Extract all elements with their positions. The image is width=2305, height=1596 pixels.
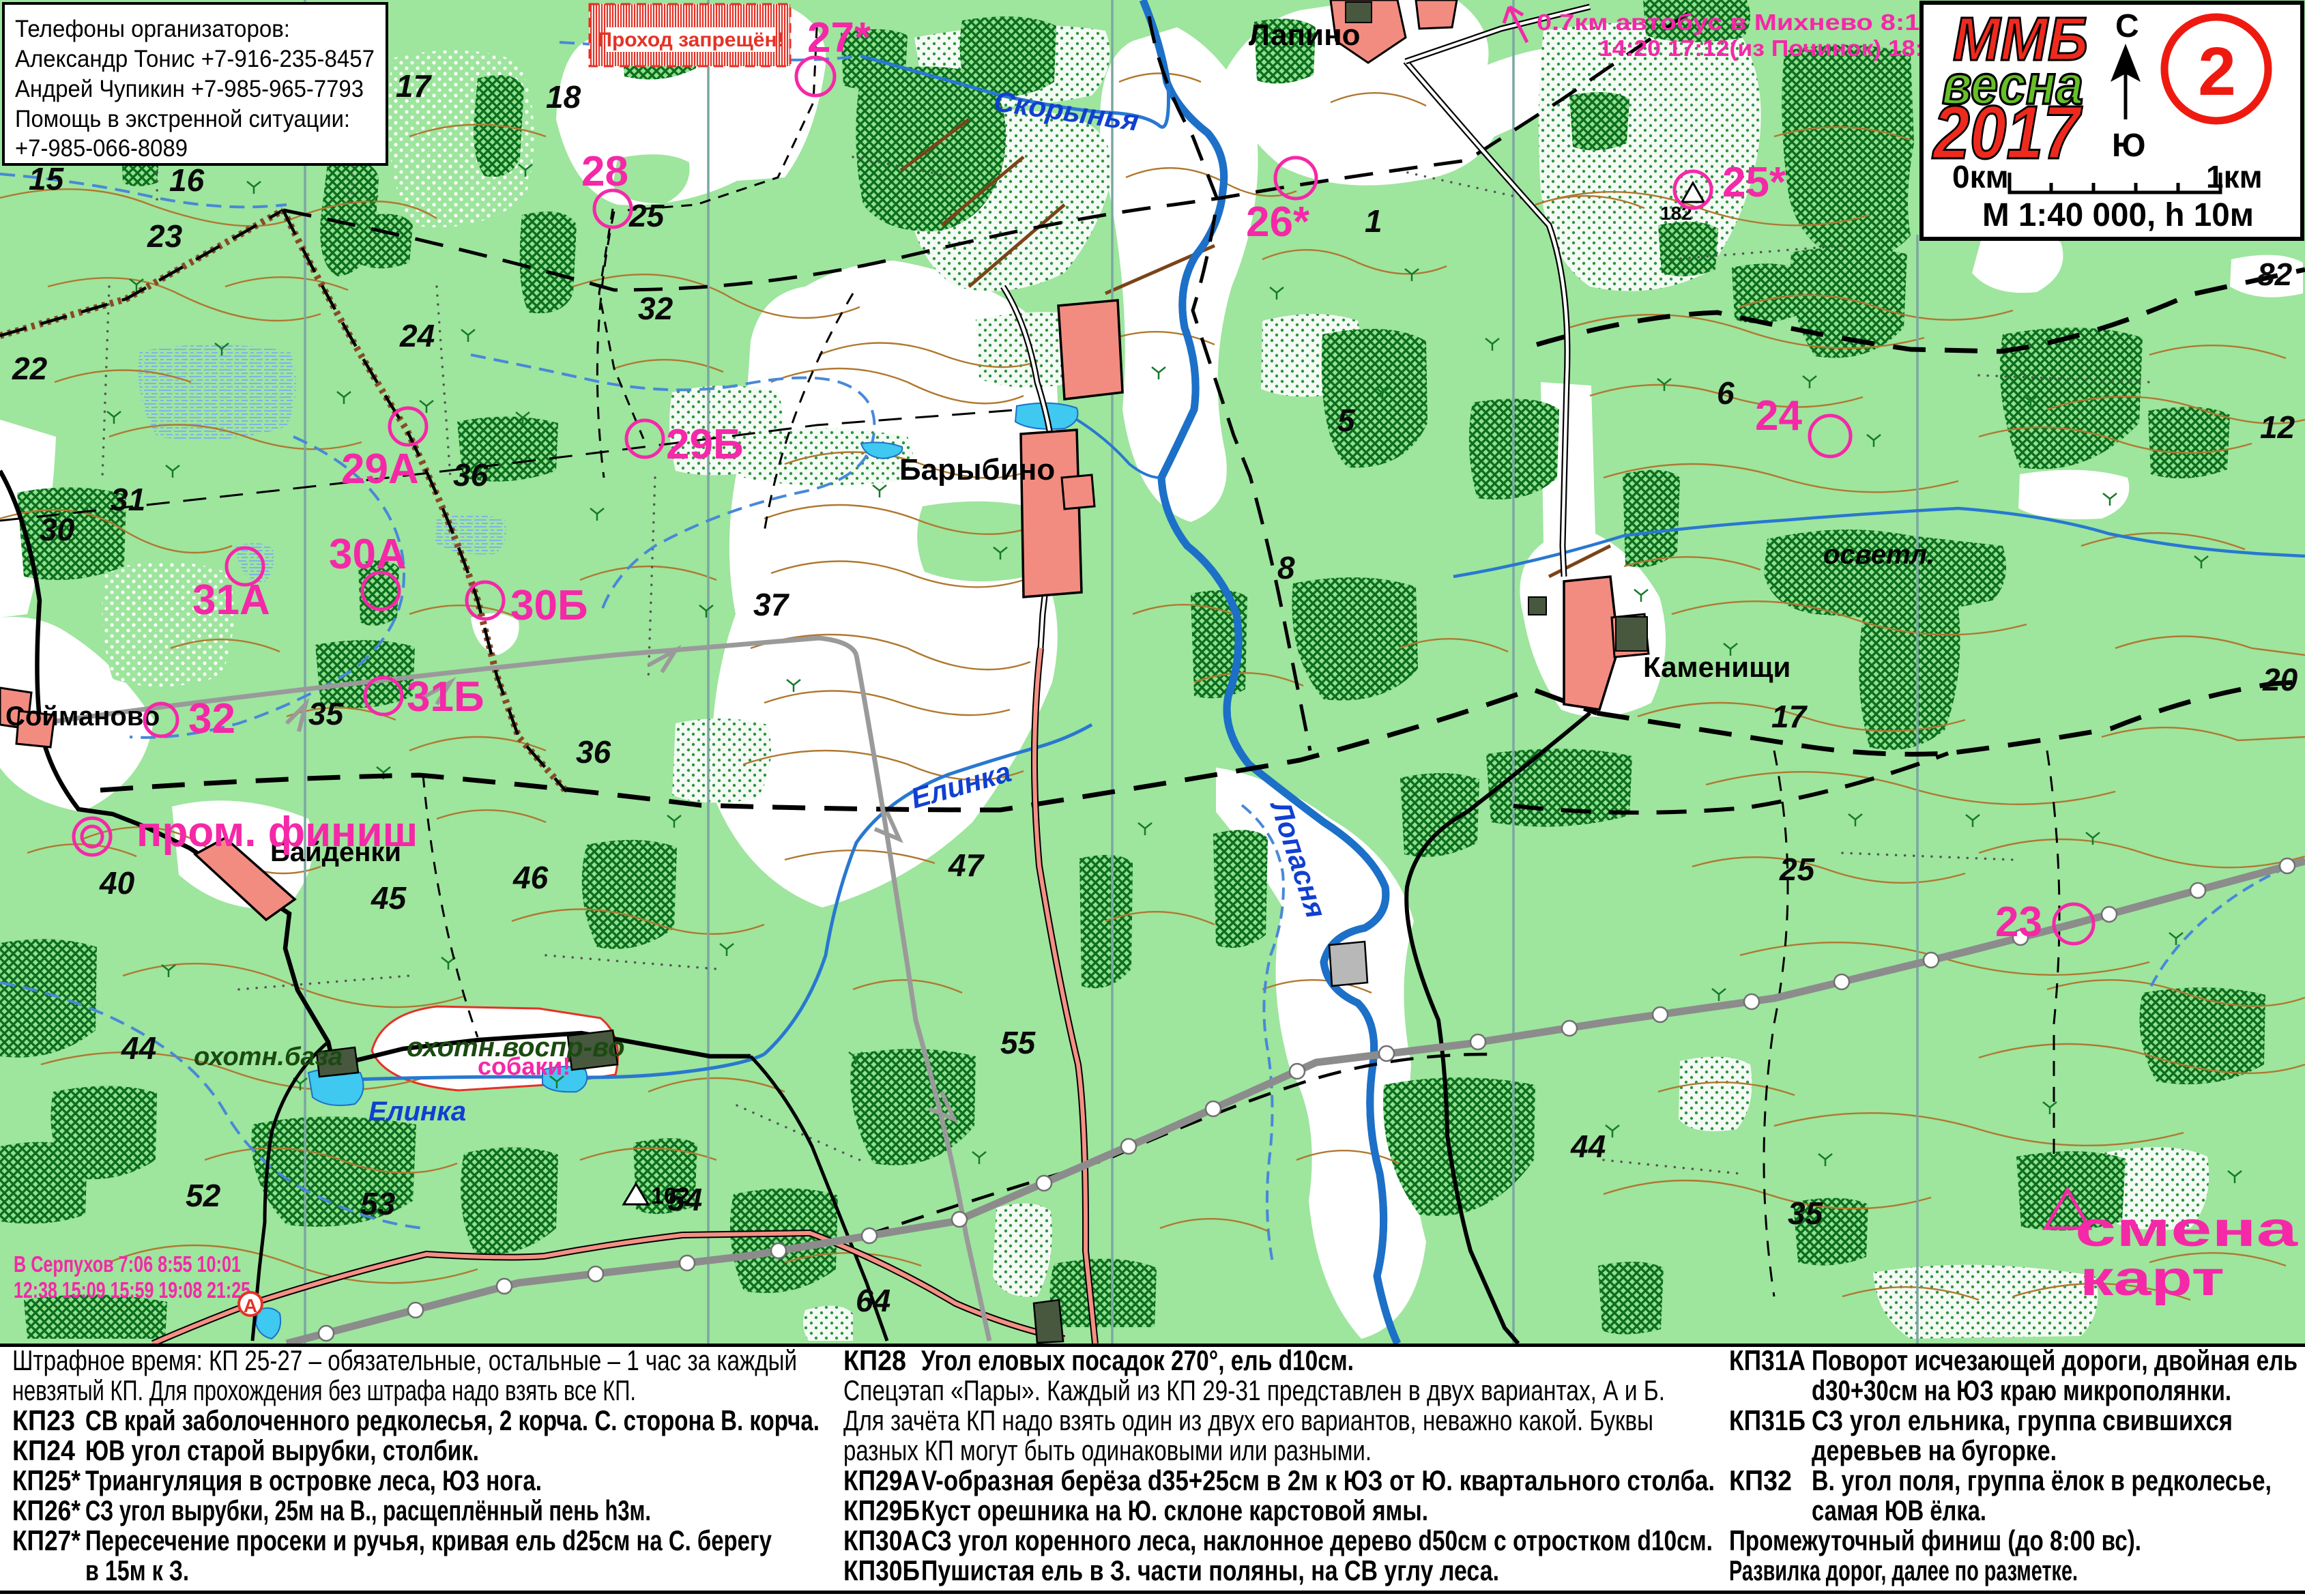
svg-text:26*: 26* <box>1246 199 1310 246</box>
svg-text:24: 24 <box>1755 392 1802 439</box>
svg-text:29А: 29А <box>341 446 419 493</box>
svg-text:28: 28 <box>581 148 628 195</box>
svg-text:8: 8 <box>1277 550 1295 585</box>
svg-text:0км: 0км <box>1952 159 2009 194</box>
svg-text:23: 23 <box>1995 899 2042 946</box>
svg-text:30: 30 <box>40 512 75 547</box>
svg-text:32: 32 <box>638 291 673 326</box>
svg-text:15: 15 <box>29 161 65 197</box>
svg-text:18: 18 <box>546 79 581 115</box>
svg-text:5: 5 <box>1337 403 1356 438</box>
svg-text:d30+30см на ЮЗ краю микрополян: d30+30см на ЮЗ краю микрополянки. <box>1812 1374 2231 1406</box>
svg-text:весна: весна <box>1942 54 2083 116</box>
svg-text:ЮВ угол старой вырубки, столби: ЮВ угол старой вырубки, столбик. <box>85 1434 479 1466</box>
svg-text:Пересечение просеки и ручья, к: Пересечение просеки и ручья, кривая ель … <box>85 1524 772 1556</box>
svg-text:54: 54 <box>667 1182 702 1217</box>
svg-text:КП24: КП24 <box>12 1434 76 1466</box>
svg-text:М 1:40 000, h 10м: М 1:40 000, h 10м <box>1982 197 2254 233</box>
svg-text:КП31Б: КП31Б <box>1729 1404 1806 1436</box>
svg-text:1: 1 <box>1365 203 1382 239</box>
svg-text:Поворот исчезающей дороги, дво: Поворот исчезающей дороги, двойная ель <box>1812 1344 2297 1376</box>
svg-text:44: 44 <box>1570 1129 1606 1164</box>
svg-text:6: 6 <box>1717 375 1735 411</box>
svg-text:Лапино: Лапино <box>1249 18 1361 52</box>
svg-text:47: 47 <box>948 847 985 883</box>
svg-text:собаки!: собаки! <box>478 1052 570 1080</box>
svg-text:82: 82 <box>2257 257 2293 292</box>
svg-text:30А: 30А <box>329 531 407 578</box>
svg-text:КП27*: КП27* <box>12 1524 81 1556</box>
svg-text:карт: карт <box>2080 1251 2224 1306</box>
svg-text:31Б: 31Б <box>407 673 484 721</box>
svg-text:КП29А: КП29А <box>843 1464 920 1496</box>
svg-text:Помощь в экстренной ситуации:: Помощь в экстренной ситуации: <box>15 106 350 132</box>
svg-text:Елинка: Елинка <box>368 1097 466 1127</box>
svg-text:2: 2 <box>2198 33 2236 110</box>
svg-text:Пушистая ель в З. части поляны: Пушистая ель в З. части поляны, на СВ уг… <box>921 1554 1499 1586</box>
svg-text:Александр Тонис +7-916-235-845: Александр Тонис +7-916-235-8457 <box>15 46 375 72</box>
svg-text:КП23: КП23 <box>12 1404 75 1436</box>
svg-text:КП32: КП32 <box>1729 1464 1792 1496</box>
svg-text:самая ЮВ ёлка.: самая ЮВ ёлка. <box>1812 1494 1986 1526</box>
svg-text:Сойманово: Сойманово <box>5 701 160 731</box>
svg-text:Андрей Чупикин +7-985-965-7793: Андрей Чупикин +7-985-965-7793 <box>15 76 364 102</box>
svg-text:23: 23 <box>147 218 183 254</box>
svg-text:12: 12 <box>2260 409 2295 445</box>
svg-text:Для зачёта КП надо взять один: Для зачёта КП надо взять один из двух ег… <box>843 1404 1653 1436</box>
svg-text:Ю: Ю <box>2112 128 2146 164</box>
svg-text:В Серпухов 7:06 8:55 10:01: В Серпухов 7:06 8:55 10:01 <box>14 1251 241 1277</box>
svg-text:53: 53 <box>360 1186 396 1221</box>
svg-text:36: 36 <box>453 457 489 493</box>
svg-text:Триангуляция в островке леса,: Триангуляция в островке леса, ЮЗ нога. <box>85 1464 542 1496</box>
svg-text:осветл.: осветл. <box>1823 540 1934 570</box>
svg-text:Каменищи: Каменищи <box>1643 651 1791 683</box>
svg-text:32: 32 <box>188 695 235 742</box>
svg-text:25: 25 <box>628 198 665 233</box>
svg-text:КП26*: КП26* <box>12 1494 81 1526</box>
svg-text:12:38 15:09 15:59 19:08 21:25: 12:38 15:09 15:59 19:08 21:25 <box>14 1277 250 1303</box>
svg-text:Куст орешника на Ю. склоне кар: Куст орешника на Ю. склоне карстовой ямы… <box>921 1494 1428 1526</box>
svg-text:36: 36 <box>576 734 611 770</box>
svg-text:охотн.база: охотн.база <box>194 1043 343 1071</box>
svg-text:СВ край заболоченного редколес: СВ край заболоченного редколесья, 2 корч… <box>85 1404 820 1436</box>
svg-text:30Б: 30Б <box>510 582 588 629</box>
svg-text:смена: смена <box>2075 1202 2298 1257</box>
svg-text:Спецэтап «Пары». Каждый из КП: Спецэтап «Пары». Каждый из КП 29-31 пред… <box>843 1374 1665 1406</box>
svg-text:V-образная берёза d35+25см в 2: V-образная берёза d35+25см в 2м к ЮЗ от … <box>921 1464 1715 1496</box>
svg-text:27*: 27* <box>807 14 871 61</box>
svg-text:СЗ угол коренного леса, наклон: СЗ угол коренного леса, наклонное дерево… <box>921 1524 1713 1556</box>
svg-text:+7-985-066-8089: +7-985-066-8089 <box>15 135 188 162</box>
svg-text:СЗ угол вырубки, 25м на В., ра: СЗ угол вырубки, 25м на В., расщеплённый… <box>85 1494 651 1526</box>
svg-text:невзятый КП. Для прохождения б: невзятый КП. Для прохождения без штрафа … <box>12 1374 636 1406</box>
svg-text:37: 37 <box>753 587 790 622</box>
svg-text:29Б: 29Б <box>666 421 744 468</box>
svg-text:31: 31 <box>111 482 145 517</box>
svg-text:КП30А: КП30А <box>843 1524 920 1556</box>
svg-text:разных КП могут быть одинаковы: разных КП могут быть одинаковыми или раз… <box>843 1434 1372 1466</box>
svg-text:пром. финиш: пром. финиш <box>136 809 418 856</box>
svg-text:35: 35 <box>308 696 345 731</box>
svg-text:КП28: КП28 <box>843 1344 906 1376</box>
svg-text:КП25*: КП25* <box>12 1464 81 1496</box>
svg-text:17: 17 <box>396 68 433 104</box>
svg-text:Развилка дорог, далее по разме: Развилка дорог, далее по разметке. <box>1729 1554 2078 1586</box>
svg-text:Угол еловых посадок 270°, ель: Угол еловых посадок 270°, ель d10см. <box>921 1344 1354 1376</box>
svg-text:1км: 1км <box>2206 159 2263 194</box>
svg-text:Телефоны организаторов:: Телефоны организаторов: <box>15 16 290 42</box>
svg-text:КП31А: КП31А <box>1729 1344 1806 1376</box>
svg-text:20: 20 <box>2262 662 2298 697</box>
svg-text:46: 46 <box>512 860 549 895</box>
svg-text:14:20 17:12(из Починок) 18:25: 14:20 17:12(из Починок) 18:25 <box>1599 35 1950 61</box>
svg-text:55: 55 <box>1000 1025 1036 1060</box>
svg-text:52: 52 <box>186 1178 221 1213</box>
svg-text:22: 22 <box>12 351 48 386</box>
svg-text:35: 35 <box>1788 1195 1824 1231</box>
svg-text:17: 17 <box>1771 699 1808 734</box>
svg-text:16: 16 <box>169 162 205 198</box>
svg-text:деревьев на бугорке.: деревьев на бугорке. <box>1812 1434 2057 1466</box>
svg-text:24: 24 <box>399 318 435 353</box>
svg-text:КП29Б: КП29Б <box>843 1494 920 1526</box>
svg-text:25: 25 <box>1779 852 1816 887</box>
svg-text:64: 64 <box>856 1283 890 1318</box>
svg-text:Барыбино: Барыбино <box>899 453 1055 487</box>
svg-text:в 15м к З.: в 15м к З. <box>85 1554 189 1586</box>
svg-text:Промежуточный финиш (до 8:00 в: Промежуточный финиш (до 8:00 вс). <box>1729 1524 2141 1556</box>
svg-text:44: 44 <box>121 1030 156 1066</box>
svg-text:СЗ угол ельника, группа свивши: СЗ угол ельника, группа свившихся <box>1812 1404 2233 1436</box>
svg-text:40: 40 <box>99 865 135 901</box>
svg-text:С: С <box>2115 8 2139 44</box>
svg-text:Штрафное время: КП 25-27 – обя: Штрафное время: КП 25-27 – обязательные,… <box>12 1344 797 1376</box>
svg-text:В. угол поля, группа ёлок в ре: В. угол поля, группа ёлок в редколесье, <box>1812 1464 2272 1496</box>
svg-text:45: 45 <box>371 880 407 916</box>
svg-text:КП30Б: КП30Б <box>843 1554 920 1586</box>
svg-text:А: А <box>244 1295 257 1316</box>
svg-text:25*: 25* <box>1722 159 1786 206</box>
svg-text:Проход запрещён!: Проход запрещён! <box>597 29 783 51</box>
svg-text:31А: 31А <box>192 577 270 624</box>
